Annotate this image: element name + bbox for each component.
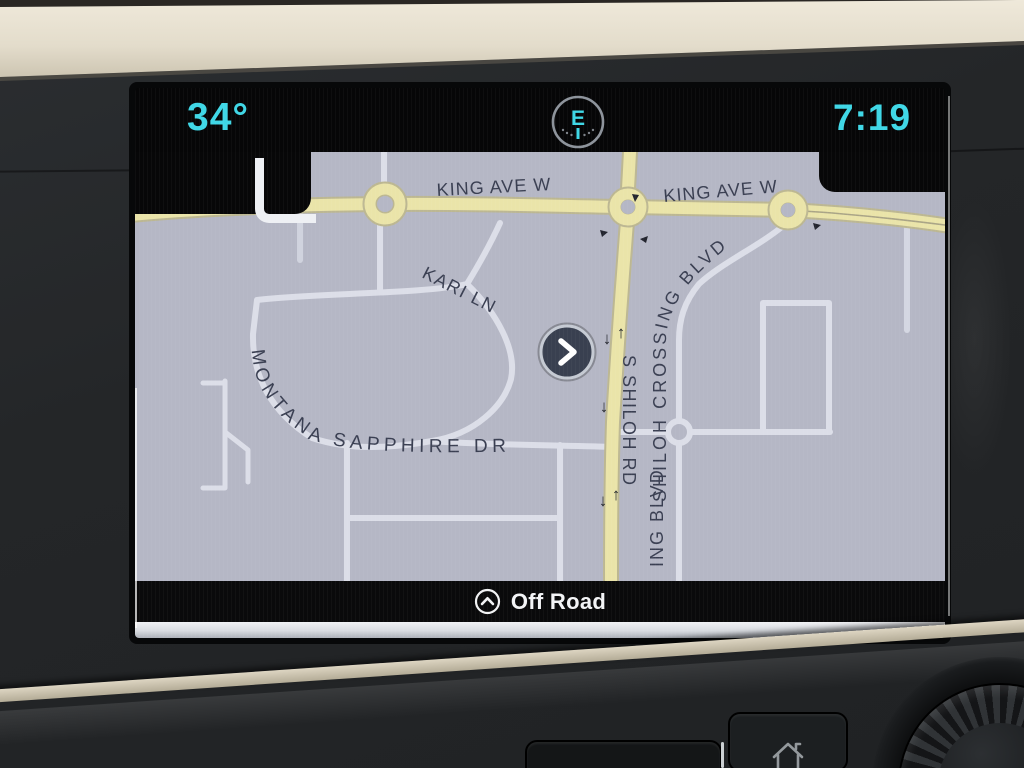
home-icon bbox=[766, 736, 810, 768]
label-shiloh-crossing-blvd: SHILOH CROSSING BLVD bbox=[650, 234, 732, 502]
label-king-ave-w-1: KING AVE W bbox=[436, 174, 552, 200]
off-road-button[interactable]: Off Road bbox=[135, 581, 945, 622]
label-ing-blvd: ING BLVD bbox=[647, 468, 667, 567]
label-s-shiloh-rd: S SHILOH RD bbox=[619, 355, 639, 487]
screen-edge-reflection bbox=[948, 96, 950, 616]
infotainment-screen[interactable]: ↓↑ ↓ ↓↑ KING AVE W KING AVE W KARI LN S … bbox=[135, 88, 945, 638]
compass-needle bbox=[577, 128, 580, 139]
road-left-block bbox=[203, 381, 248, 488]
home-button[interactable] bbox=[728, 712, 848, 768]
chevron-up-circle-icon bbox=[474, 588, 501, 615]
status-tab-right bbox=[819, 152, 945, 192]
svg-text:↑: ↑ bbox=[617, 323, 626, 342]
off-road-label: Off Road bbox=[511, 589, 606, 615]
hardware-button-left[interactable] bbox=[525, 740, 722, 768]
map-corner-button[interactable] bbox=[255, 158, 316, 223]
svg-text:↓: ↓ bbox=[603, 329, 612, 348]
vehicle-marker bbox=[539, 324, 595, 380]
svg-text:↓: ↓ bbox=[600, 397, 609, 416]
label-montana-sapphire-dr: MONTANA SAPPHIRE DR bbox=[247, 348, 511, 457]
bezel-seam-left bbox=[0, 169, 131, 172]
svg-text:↑: ↑ bbox=[612, 485, 621, 504]
status-bar: 34° E 7:19 bbox=[135, 88, 945, 152]
road-right-block bbox=[763, 303, 829, 432]
roundabout-minor bbox=[668, 421, 690, 443]
dashboard-photo: ↓↑ ↓ ↓↑ KING AVE W KING AVE W KARI LN S … bbox=[0, 0, 1024, 768]
screen-edge-glint bbox=[135, 388, 137, 628]
button-divider-mark bbox=[721, 742, 724, 768]
compass-icon: E bbox=[550, 94, 606, 150]
temperature-readout: 34° bbox=[187, 96, 249, 140]
dash-trim-top bbox=[0, 0, 1024, 84]
compass-heading: E bbox=[571, 107, 585, 130]
bezel-seam-right bbox=[949, 148, 1024, 153]
clock-readout: 7:19 bbox=[833, 97, 911, 139]
road-kari-ln bbox=[467, 223, 500, 284]
svg-text:↓: ↓ bbox=[599, 491, 608, 510]
